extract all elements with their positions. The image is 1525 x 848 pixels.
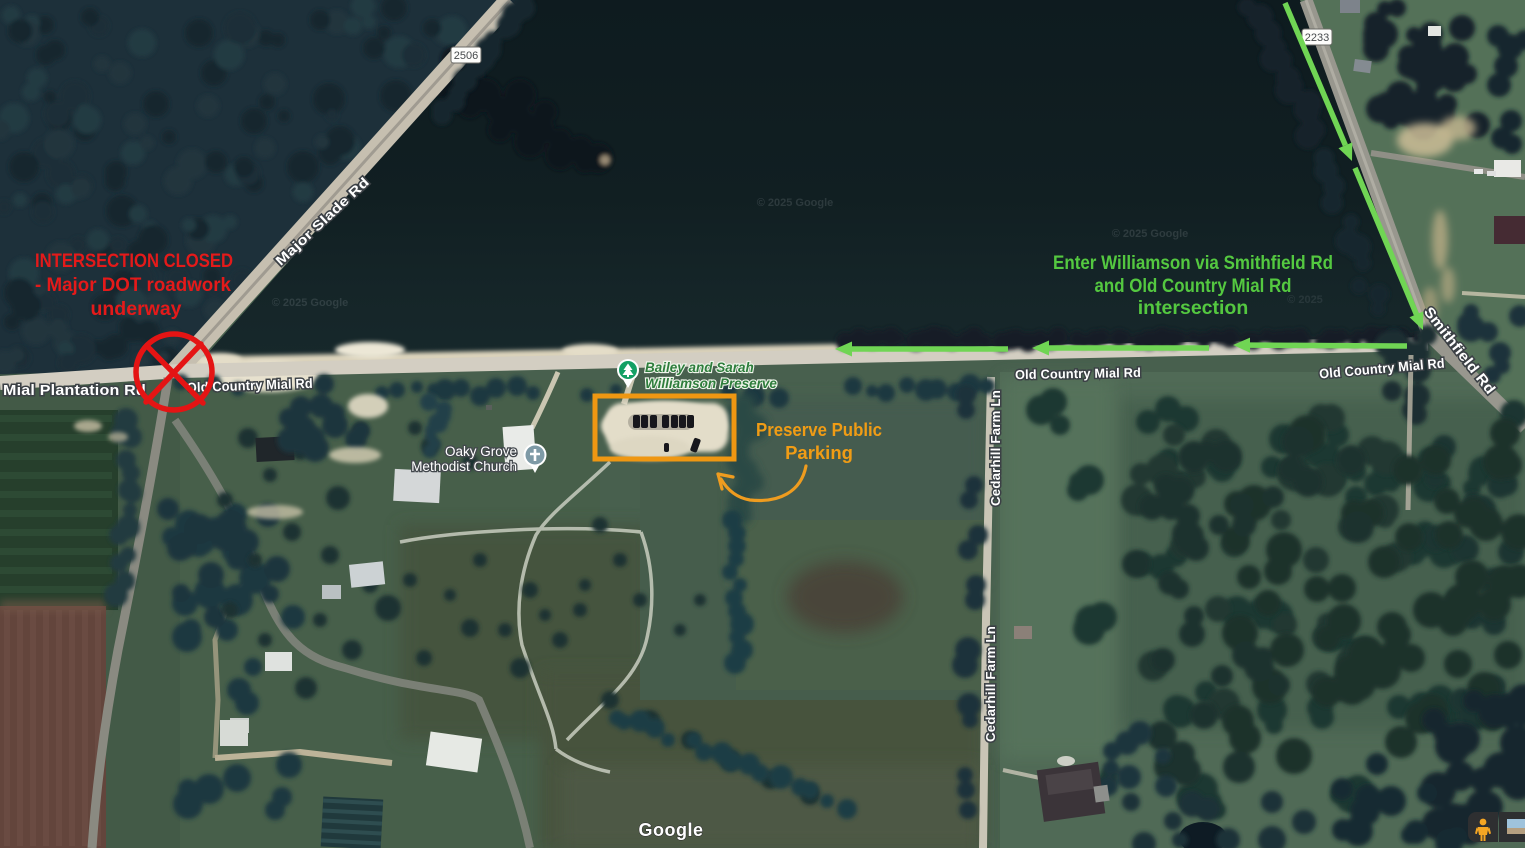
svg-text:- Major DOT roadwork: - Major DOT roadwork: [35, 274, 231, 296]
svg-text:Preserve Public: Preserve Public: [756, 419, 882, 440]
svg-text:underway: underway: [90, 298, 181, 320]
svg-text:and Old Country Mial Rd: and Old Country Mial Rd: [1095, 275, 1292, 297]
svg-text:Google: Google: [639, 820, 704, 840]
svg-text:© 2025: © 2025: [1287, 294, 1323, 306]
svg-text:Oaky Grove: Oaky Grove: [445, 444, 517, 459]
svg-text:Methodist Church: Methodist Church: [411, 459, 517, 474]
svg-text:Cedarhill Farm Ln: Cedarhill Farm Ln: [984, 626, 998, 742]
svg-text:Old Country Mial Rd: Old Country Mial Rd: [1015, 365, 1141, 382]
svg-text:Cedarhill Farm Ln: Cedarhill Farm Ln: [989, 390, 1003, 506]
svg-text:© 2025 Google: © 2025 Google: [757, 197, 834, 209]
svg-text:INTERSECTION CLOSED: INTERSECTION CLOSED: [35, 250, 233, 272]
svg-text:Mial Plantation Rd: Mial Plantation Rd: [3, 383, 146, 399]
svg-text:Parking: Parking: [785, 442, 853, 463]
svg-text:2233: 2233: [1305, 32, 1329, 44]
svg-text:Bailey and Sarah: Bailey and Sarah: [645, 360, 754, 375]
svg-text:intersection: intersection: [1138, 297, 1249, 319]
svg-text:© 2025 Google: © 2025 Google: [1112, 228, 1189, 240]
svg-text:Enter Williamson via Smithfiel: Enter Williamson via Smithfield Rd: [1053, 252, 1333, 274]
svg-text:2506: 2506: [454, 50, 478, 62]
svg-text:© 2025 Google: © 2025 Google: [272, 297, 349, 309]
svg-text:Williamson Preserve: Williamson Preserve: [645, 376, 777, 391]
